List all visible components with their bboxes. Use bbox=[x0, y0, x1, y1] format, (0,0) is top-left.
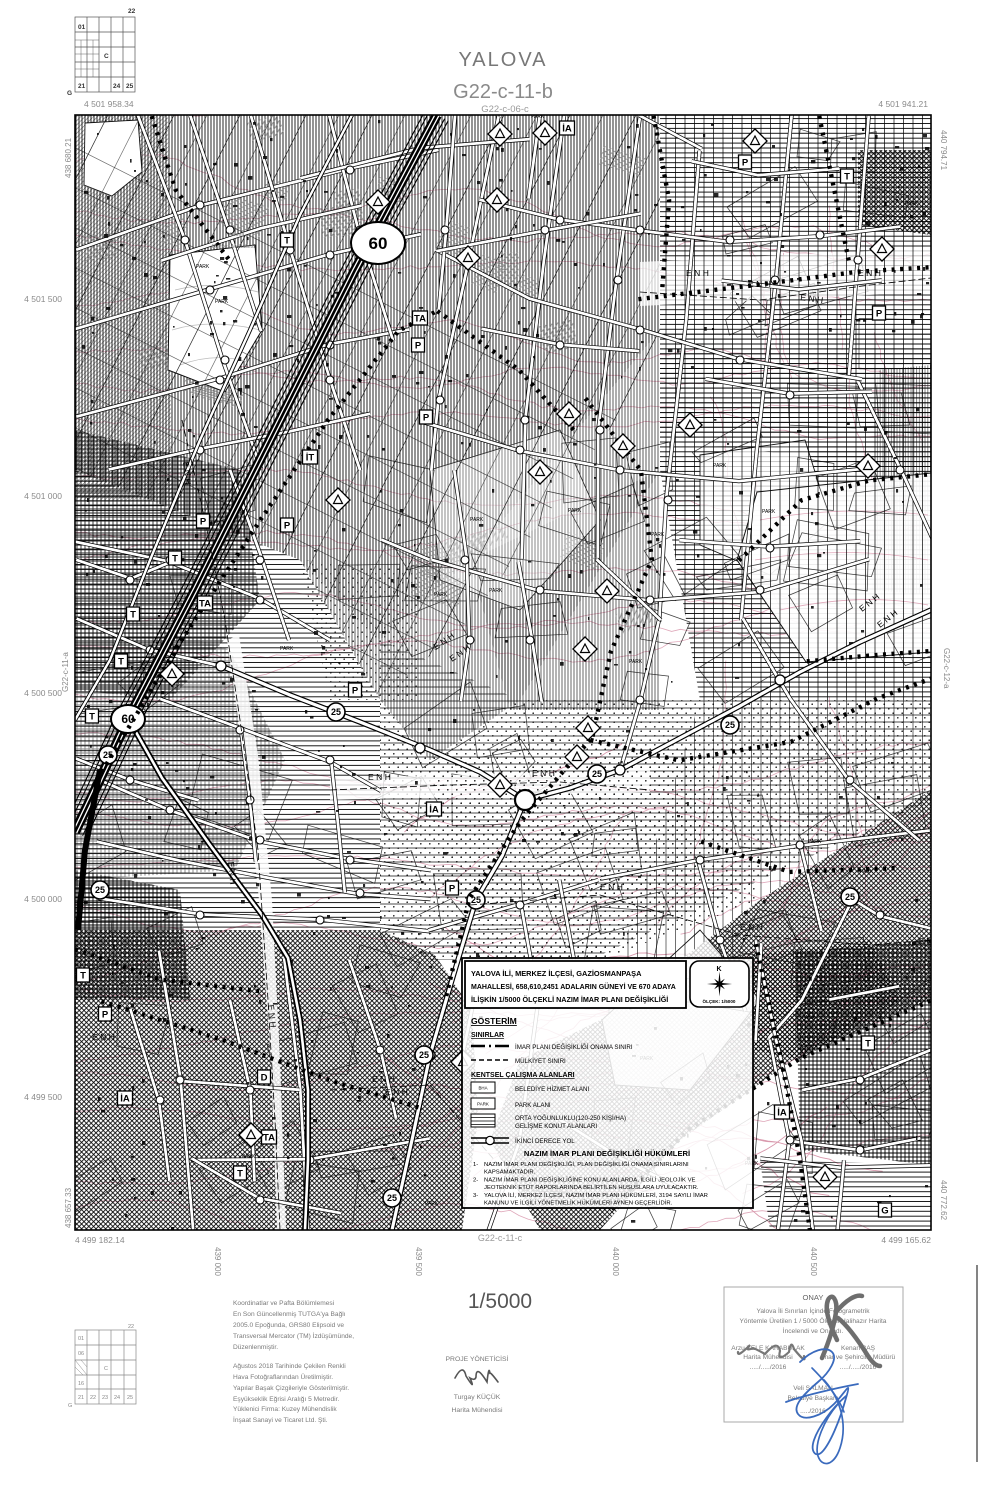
svg-text:Düzenlenmiştir.: Düzenlenmiştir. bbox=[233, 1344, 278, 1351]
svg-text:İA: İA bbox=[120, 1094, 130, 1105]
svg-text:MAHALLESİ, 658,610,2451 ADALAR: MAHALLESİ, 658,610,2451 ADALARIN GÜNEYİ … bbox=[471, 982, 676, 991]
svg-text:D: D bbox=[261, 1073, 268, 1084]
svg-text:25: 25 bbox=[95, 885, 105, 895]
svg-text:PARK: PARK bbox=[802, 1015, 816, 1021]
svg-text:60: 60 bbox=[369, 234, 388, 253]
svg-text:25: 25 bbox=[592, 769, 602, 779]
svg-text:SINIRLAR: SINIRLAR bbox=[471, 1032, 504, 1039]
svg-text:TA: TA bbox=[263, 1133, 275, 1144]
svg-text:İA: İA bbox=[429, 805, 439, 816]
svg-text:G22-c-11-c: G22-c-11-c bbox=[478, 1233, 523, 1243]
svg-text:4 501 941.21: 4 501 941.21 bbox=[878, 99, 928, 109]
svg-text:P: P bbox=[284, 521, 291, 532]
svg-text:440 772.62: 440 772.62 bbox=[939, 1180, 948, 1221]
svg-text:01: 01 bbox=[78, 24, 86, 31]
svg-text:25: 25 bbox=[126, 83, 134, 90]
svg-text:G: G bbox=[67, 90, 72, 97]
svg-text:Hava Fotoğraflarından Üretilmi: Hava Fotoğraflarından Üretilmiştir. bbox=[233, 1373, 333, 1381]
svg-text:P: P bbox=[200, 517, 207, 528]
svg-text:P: P bbox=[449, 884, 456, 895]
svg-text:G22-c-12-a: G22-c-12-a bbox=[942, 648, 951, 689]
svg-text:En Son Güncellenmiş TUTGA'ya B: En Son Güncellenmiş TUTGA'ya Bağlı bbox=[233, 1311, 346, 1318]
svg-text:T: T bbox=[237, 1169, 243, 1180]
svg-text:Ağustos 2018 Tarihinde Çekilen: Ağustos 2018 Tarihinde Çekilen Renkli bbox=[233, 1363, 346, 1370]
svg-text:4 499 500: 4 499 500 bbox=[24, 1092, 62, 1102]
svg-text:2-: 2- bbox=[473, 1178, 478, 1184]
svg-text:PARK: PARK bbox=[905, 201, 919, 207]
svg-text:İnşaat Sanayi ve Ticaret Ltd.: İnşaat Sanayi ve Ticaret Ltd. Şti. bbox=[233, 1415, 328, 1424]
svg-text:G: G bbox=[68, 1403, 72, 1409]
svg-text:GÖSTERİM: GÖSTERİM bbox=[471, 1016, 517, 1026]
svg-text:NAZIM İMAR PLANI DEĞİŞİKLİĞİ,: NAZIM İMAR PLANI DEĞİŞİKLİĞİ, PLAN DEĞİŞ… bbox=[484, 1161, 689, 1168]
svg-text:TA: TA bbox=[414, 314, 426, 325]
svg-text:T: T bbox=[118, 657, 124, 668]
svg-text:25: 25 bbox=[127, 1395, 133, 1401]
svg-text:T: T bbox=[130, 610, 136, 621]
svg-text:İA: İA bbox=[777, 1108, 787, 1119]
svg-text:4 499 182.14: 4 499 182.14 bbox=[75, 1235, 125, 1245]
svg-text:NAZIM İMAR PLANI DEĞİŞİKLİĞİNE: NAZIM İMAR PLANI DEĞİŞİKLİĞİNE KONU ALAN… bbox=[484, 1177, 696, 1184]
svg-text:G22-c-11-b: G22-c-11-b bbox=[453, 81, 553, 103]
svg-text:PARK: PARK bbox=[762, 509, 776, 515]
svg-text:P: P bbox=[423, 413, 430, 424]
svg-text:Yalova: Yalova bbox=[228, 232, 245, 238]
svg-text:25: 25 bbox=[845, 892, 855, 902]
svg-text:ONAY: ONAY bbox=[803, 1293, 824, 1302]
svg-text:JEOTEKNİK ETÜT RAPORLARINDA BE: JEOTEKNİK ETÜT RAPORLARINDA BELİRTİLEN H… bbox=[484, 1184, 699, 1191]
svg-text:T: T bbox=[89, 712, 95, 723]
svg-text:16: 16 bbox=[78, 1381, 84, 1387]
svg-text:25: 25 bbox=[387, 1193, 397, 1203]
svg-text:PARK: PARK bbox=[808, 839, 822, 845]
svg-text:PARK: PARK bbox=[629, 659, 643, 665]
svg-text:P: P bbox=[415, 341, 422, 352]
svg-text:1/5000: 1/5000 bbox=[468, 1290, 532, 1313]
svg-text:YALOVA: YALOVA bbox=[458, 49, 547, 71]
svg-text:Transversal Mercator (TM) İzdü: Transversal Mercator (TM) İzdüşümünde, bbox=[233, 1331, 354, 1340]
svg-text:ENH: ENH bbox=[385, 1087, 410, 1097]
svg-text:PARK: PARK bbox=[196, 264, 210, 270]
svg-text:PARK: PARK bbox=[713, 463, 727, 469]
svg-text:1-: 1- bbox=[473, 1162, 478, 1168]
svg-text:439 500: 439 500 bbox=[414, 1247, 423, 1276]
svg-text:ORTA YOĞUNLUKLU(120-250 KİŞİ/H: ORTA YOĞUNLUKLU(120-250 KİŞİ/HA) bbox=[515, 1115, 626, 1122]
svg-text:İKİNCİ DERECE YOL: İKİNCİ DERECE YOL bbox=[515, 1138, 575, 1145]
svg-text:ÖLÇEK: 1/5000: ÖLÇEK: 1/5000 bbox=[703, 998, 736, 1004]
svg-text:439 000: 439 000 bbox=[213, 1247, 222, 1276]
svg-text:PARK: PARK bbox=[477, 1102, 489, 1107]
svg-text:...../...../2016: ...../...../2016 bbox=[840, 1364, 877, 1371]
svg-text:T: T bbox=[284, 236, 290, 247]
svg-text:...../...../2016: ...../...../2016 bbox=[750, 1364, 787, 1371]
svg-text:K: K bbox=[716, 966, 721, 973]
svg-text:P: P bbox=[876, 309, 883, 320]
svg-text:PARK: PARK bbox=[470, 517, 484, 523]
svg-text:T: T bbox=[172, 554, 178, 565]
svg-text:GELİŞME KONUT ALANLARI: GELİŞME KONUT ALANLARI bbox=[515, 1123, 597, 1130]
svg-text:438 680.21: 438 680.21 bbox=[64, 137, 73, 178]
svg-text:PROJE YÖNETİCİSİ: PROJE YÖNETİCİSİ bbox=[446, 1354, 509, 1363]
svg-text:23: 23 bbox=[102, 1395, 108, 1401]
svg-text:KANUNU VE İLGİLİ YÖNETMELİK HÜ: KANUNU VE İLGİLİ YÖNETMELİK HÜKÜMLERİ AY… bbox=[484, 1200, 673, 1207]
svg-text:ENH: ENH bbox=[532, 768, 557, 778]
svg-text:4 501 000: 4 501 000 bbox=[24, 491, 62, 501]
svg-text:BELEDİYE HİZMET ALANI: BELEDİYE HİZMET ALANI bbox=[515, 1086, 589, 1093]
svg-text:Yapılar Başak Çizgileriyle Gös: Yapılar Başak Çizgileriyle Gösterilmişti… bbox=[233, 1385, 349, 1392]
svg-text:PARK: PARK bbox=[651, 532, 665, 538]
svg-text:Eşyükseklik Eğrisi Aralığı 5 M: Eşyükseklik Eğrisi Aralığı 5 Metredir. bbox=[233, 1396, 339, 1403]
svg-text:ENH: ENH bbox=[92, 1032, 117, 1042]
svg-text:ENH: ENH bbox=[686, 268, 711, 278]
svg-text:22: 22 bbox=[128, 8, 136, 15]
svg-text:4 500 000: 4 500 000 bbox=[24, 894, 62, 904]
svg-text:P: P bbox=[742, 158, 749, 169]
svg-text:440 794.71: 440 794.71 bbox=[939, 130, 948, 171]
svg-text:01: 01 bbox=[78, 1336, 84, 1342]
svg-text:İT: İT bbox=[306, 453, 315, 464]
svg-text:Turgay KÜÇÜK: Turgay KÜÇÜK bbox=[454, 1393, 501, 1401]
svg-text:Koordinatlar ve Pafta Bölümlem: Koordinatlar ve Pafta Bölümlemesi bbox=[233, 1300, 335, 1307]
svg-text:KENTSEL ÇALIŞMA ALANLARI: KENTSEL ÇALIŞMA ALANLARI bbox=[471, 1072, 575, 1079]
svg-text:440 000: 440 000 bbox=[611, 1247, 620, 1276]
svg-text:T: T bbox=[865, 1039, 871, 1050]
svg-text:G22-c-11-a: G22-c-11-a bbox=[61, 652, 70, 692]
svg-text:P: P bbox=[352, 686, 359, 697]
svg-text:21: 21 bbox=[78, 83, 86, 90]
svg-text:25: 25 bbox=[725, 720, 735, 730]
svg-text:24: 24 bbox=[114, 1395, 120, 1401]
svg-text:PARK: PARK bbox=[215, 299, 229, 305]
svg-text:06: 06 bbox=[78, 1351, 84, 1357]
svg-text:22: 22 bbox=[90, 1395, 96, 1401]
svg-text:25: 25 bbox=[419, 1050, 429, 1060]
svg-text:21: 21 bbox=[78, 1395, 84, 1401]
svg-text:24: 24 bbox=[113, 83, 121, 90]
svg-text:ENH: ENH bbox=[368, 772, 393, 782]
svg-text:2005.0 Epoğunda, GRS80 Elipsoi: 2005.0 Epoğunda, GRS80 Elipsoid ve bbox=[233, 1322, 344, 1329]
svg-text:PARK: PARK bbox=[860, 869, 874, 875]
svg-text:ENH: ENH bbox=[858, 268, 883, 278]
svg-text:22: 22 bbox=[128, 1324, 134, 1330]
svg-text:T: T bbox=[80, 971, 86, 982]
svg-text:T: T bbox=[844, 172, 850, 183]
svg-text:NAZIM İMAR PLANI DEĞİŞİKLİĞİ H: NAZIM İMAR PLANI DEĞİŞİKLİĞİ HÜKÜMLERİ bbox=[524, 1149, 690, 1158]
svg-text:Kenan BAŞ: Kenan BAŞ bbox=[841, 1345, 876, 1352]
svg-text:Yüklenici Firma: Kuzey Mühendi: Yüklenici Firma: Kuzey Mühendislik bbox=[233, 1406, 337, 1413]
svg-text:Yalova İli Sınırları İçinde F: Yalova İli Sınırları İçinde Fotogrametri… bbox=[756, 1306, 870, 1315]
svg-text:İMAR PLANI DEĞİŞİKLİĞİ ONAMA S: İMAR PLANI DEĞİŞİKLİĞİ ONAMA SINIRI bbox=[515, 1044, 633, 1051]
svg-text:PARK ALANI: PARK ALANI bbox=[515, 1102, 551, 1109]
svg-text:PARK: PARK bbox=[568, 508, 582, 514]
svg-text:MÜLKİYET SINIRI: MÜLKİYET SINIRI bbox=[515, 1058, 566, 1065]
svg-text:PARK: PARK bbox=[425, 1201, 439, 1207]
svg-text:BHA: BHA bbox=[478, 1086, 487, 1091]
svg-text:TA: TA bbox=[199, 599, 211, 610]
svg-text:ENH: ENH bbox=[740, 922, 765, 932]
svg-text:PARK: PARK bbox=[489, 588, 503, 594]
svg-text:P: P bbox=[102, 1010, 109, 1021]
svg-text:3-: 3- bbox=[473, 1193, 478, 1199]
svg-text:İA: İA bbox=[562, 124, 572, 135]
svg-text:PARK: PARK bbox=[434, 592, 448, 598]
svg-text:440 500: 440 500 bbox=[809, 1247, 818, 1276]
svg-text:C: C bbox=[104, 1366, 108, 1372]
svg-text:PARK: PARK bbox=[242, 1154, 256, 1160]
svg-text:G: G bbox=[881, 1206, 888, 1217]
svg-text:Harita Mühendisi: Harita Mühendisi bbox=[452, 1407, 503, 1414]
svg-text:YALOVA İLİ, MERKEZ İLÇESİ, NAZ: YALOVA İLİ, MERKEZ İLÇESİ, NAZIM İMAR PL… bbox=[484, 1192, 708, 1199]
svg-text:4 500 500: 4 500 500 bbox=[24, 688, 62, 698]
svg-text:438 657.33: 438 657.33 bbox=[64, 1187, 73, 1228]
svg-text:ENH: ENH bbox=[600, 882, 625, 892]
svg-text:C: C bbox=[104, 53, 109, 60]
svg-text:25: 25 bbox=[331, 707, 341, 717]
svg-text:ENH: ENH bbox=[748, 279, 773, 289]
svg-text:PARK: PARK bbox=[280, 646, 294, 652]
svg-text:4 501 500: 4 501 500 bbox=[24, 294, 62, 304]
svg-text:4 499 165.62: 4 499 165.62 bbox=[881, 1235, 931, 1245]
svg-text:YALOVA İLİ, MERKEZ İLÇESİ, GAZ: YALOVA İLİ, MERKEZ İLÇESİ, GAZİOSMANPAŞA bbox=[471, 969, 642, 978]
svg-text:Yöntemle Üretilen 1 / 5000 Öl: Yöntemle Üretilen 1 / 5000 Ölçekli Halih… bbox=[740, 1317, 887, 1325]
svg-text:Merkez Mahallesi: Merkez Mahallesi bbox=[212, 244, 255, 250]
svg-text:İLİŞKİN 1/5000 ÖLÇEKLİ NAZIM İ: İLİŞKİN 1/5000 ÖLÇEKLİ NAZIM İMAR PLANI … bbox=[471, 995, 668, 1004]
svg-text:KAPSAMAKTADIR.: KAPSAMAKTADIR. bbox=[484, 1170, 536, 1176]
svg-text:4 501 958.34: 4 501 958.34 bbox=[84, 99, 134, 109]
svg-text:G22-c-06-c: G22-c-06-c bbox=[481, 104, 529, 115]
svg-text:ENH: ENH bbox=[372, 1074, 397, 1084]
